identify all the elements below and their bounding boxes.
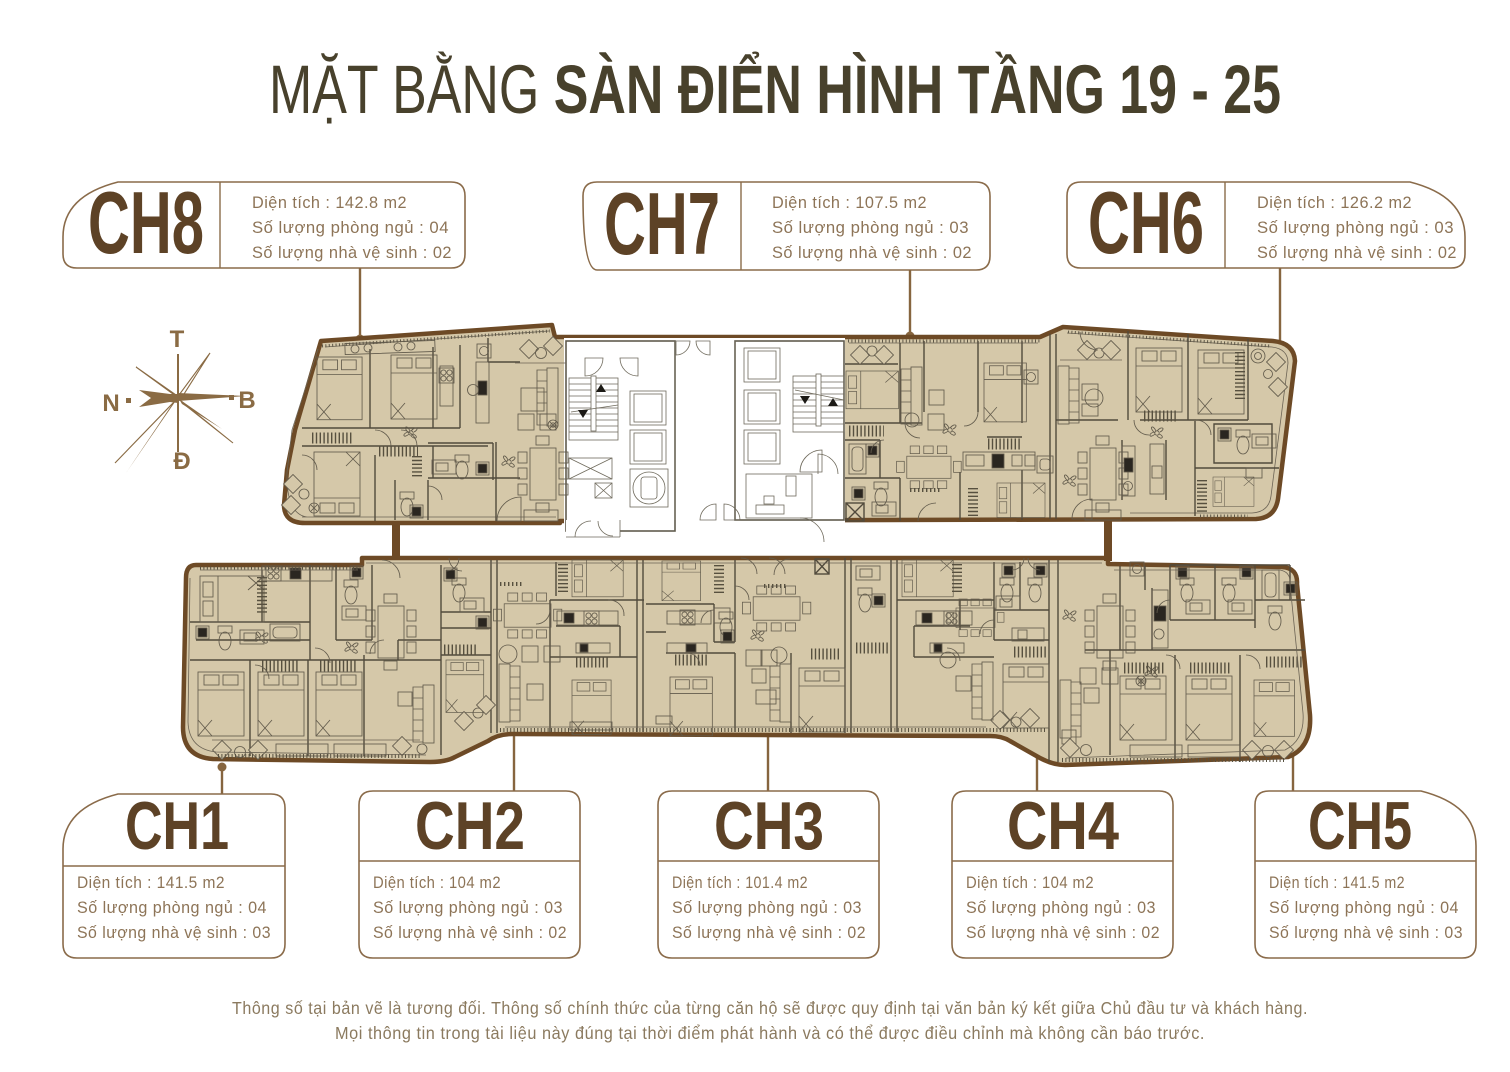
svg-text:Mọi thông tin trong tài liệu n: Mọi thông tin trong tài liệu này đúng tạ… — [335, 1023, 1205, 1043]
svg-text:Số lượng nhà vệ sinh : 02: Số lượng nhà vệ sinh : 02 — [373, 923, 567, 942]
svg-text:CH5: CH5 — [1308, 788, 1412, 864]
svg-text:B: B — [238, 387, 255, 414]
svg-text:Số lượng phòng ngủ : 03: Số lượng phòng ngủ : 03 — [1257, 218, 1454, 237]
svg-text:Số lượng nhà vệ sinh : 02: Số lượng nhà vệ sinh : 02 — [672, 923, 866, 942]
svg-text:Diện tích : 126.2 m2: Diện tích : 126.2 m2 — [1257, 193, 1412, 212]
svg-text:Số lượng phòng ngủ : 03: Số lượng phòng ngủ : 03 — [672, 898, 862, 917]
svg-text:CH3: CH3 — [714, 788, 824, 864]
svg-text:Số lượng phòng ngủ : 04: Số lượng phòng ngủ : 04 — [1269, 898, 1459, 917]
svg-text:Số lượng nhà vệ sinh : 02: Số lượng nhà vệ sinh : 02 — [252, 243, 452, 262]
svg-text:Số lượng phòng ngủ : 03: Số lượng phòng ngủ : 03 — [966, 898, 1156, 917]
svg-text:MẶT BẰNG SÀN ĐIỂN HÌNH TẦNG 19: MẶT BẰNG SÀN ĐIỂN HÌNH TẦNG 19 - 25 — [269, 51, 1281, 128]
svg-text:Diện tích : 107.5 m2: Diện tích : 107.5 m2 — [772, 193, 927, 212]
svg-text:CH2: CH2 — [415, 788, 525, 864]
svg-text:Diện tích : 104 m2: Diện tích : 104 m2 — [373, 873, 501, 892]
svg-text:Số lượng nhà vệ sinh : 02: Số lượng nhà vệ sinh : 02 — [966, 923, 1160, 942]
svg-text:Số lượng nhà vệ sinh : 03: Số lượng nhà vệ sinh : 03 — [77, 923, 271, 942]
svg-text:Số lượng phòng ngủ : 03: Số lượng phòng ngủ : 03 — [772, 218, 969, 237]
svg-text:Số lượng phòng ngủ : 03: Số lượng phòng ngủ : 03 — [373, 898, 563, 917]
svg-text:Số lượng nhà vệ sinh : 03: Số lượng nhà vệ sinh : 03 — [1269, 923, 1463, 942]
svg-text:Diện tích : 101.4 m2: Diện tích : 101.4 m2 — [672, 873, 808, 892]
svg-text:Diện tích : 141.5 m2: Diện tích : 141.5 m2 — [1269, 873, 1405, 892]
svg-text:CH7: CH7 — [604, 174, 720, 273]
svg-text:CH4: CH4 — [1007, 788, 1119, 864]
svg-text:CH8: CH8 — [88, 173, 204, 272]
svg-text:CH6: CH6 — [1088, 173, 1204, 272]
svg-text:CH1: CH1 — [125, 788, 229, 864]
svg-text:Đ: Đ — [173, 448, 190, 475]
svg-text:Diện tích : 104 m2: Diện tích : 104 m2 — [966, 873, 1094, 892]
svg-text:Diện tích : 141.5 m2: Diện tích : 141.5 m2 — [77, 873, 225, 892]
svg-text:Diện tích : 142.8 m2: Diện tích : 142.8 m2 — [252, 193, 407, 212]
svg-text:Số lượng phòng ngủ : 04: Số lượng phòng ngủ : 04 — [252, 218, 449, 237]
svg-text:Thông số tại bản vẽ là tương đ: Thông số tại bản vẽ là tương đối. Thông … — [232, 998, 1308, 1018]
svg-text:T: T — [170, 326, 185, 353]
svg-text:N: N — [102, 390, 119, 417]
svg-text:Số lượng nhà vệ sinh : 02: Số lượng nhà vệ sinh : 02 — [772, 243, 972, 262]
svg-text:Số lượng phòng ngủ : 04: Số lượng phòng ngủ : 04 — [77, 898, 267, 917]
svg-text:Số lượng nhà vệ sinh : 02: Số lượng nhà vệ sinh : 02 — [1257, 243, 1457, 262]
